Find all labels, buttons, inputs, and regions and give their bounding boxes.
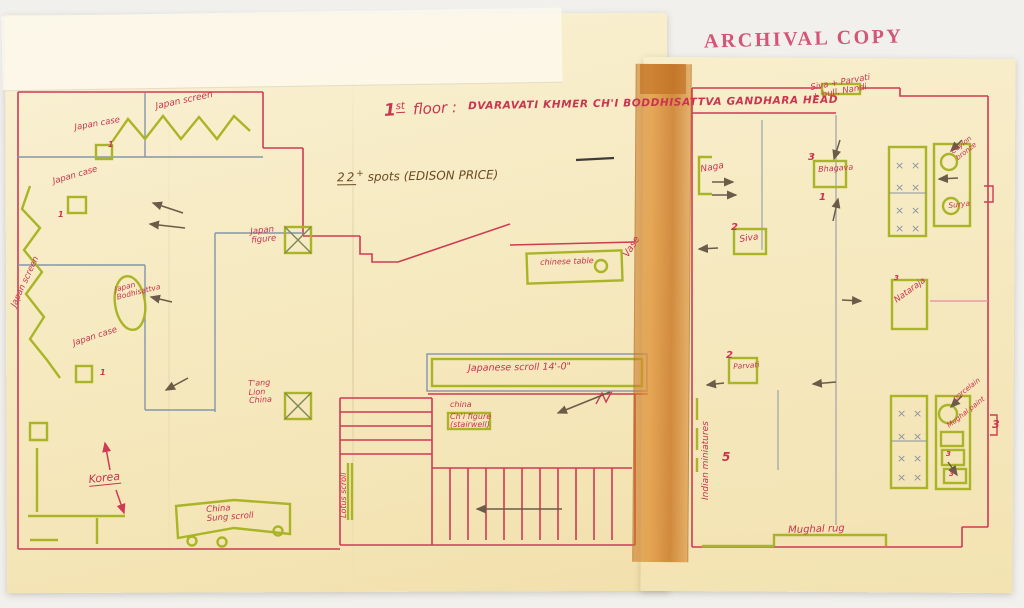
label-indian-miniatures: Indian miniatures [702,421,712,500]
svg-text:×: × [913,471,922,484]
spot-plus: + [356,169,364,179]
svg-text:×: × [895,204,904,217]
tape-strip-top [640,64,686,94]
red-ink-walls-right [692,88,997,547]
japan-screen-top-zigzag [112,116,250,142]
svg-text:×: × [913,452,922,465]
label-lotus-scroll: Lotus scroll [340,473,349,518]
svg-text:×: × [911,181,920,194]
svg-text:×: × [897,407,906,420]
qty-japan-case-2: 1 [58,210,64,219]
room-count: 5 [722,450,730,464]
boxed-count: 3 [992,418,1000,431]
qty-siva: 2 [731,222,738,233]
pencil-interior-walls [18,93,836,525]
artwork-item: DVARAVATI [468,99,539,112]
svg-text:×: × [911,222,920,235]
spot-text: spots (EDISON PRICE) [364,168,499,184]
floor-ordinal: st [395,100,405,112]
artwork-item: CH'I BODDHISATTVA [593,96,723,110]
qty-nataraja: 3 [894,274,899,282]
green-cases-right [697,84,970,546]
svg-text:×: × [895,222,904,235]
label-sung-scroll: China Sung scroll [206,503,254,525]
japan-case-2-box [68,197,86,213]
qty-japan-case-3: 1 [100,368,106,377]
svg-text:×: × [913,407,922,420]
svg-text:×: × [897,452,906,465]
pencil-arrows [150,140,962,509]
scanned-floor-plan-document: ×× ×× ×× ×× ×× ×× ×× ×× ARC [0,0,1024,608]
label-chi-figure: china Ch'i figure (stairwell) [450,401,491,430]
qty-bhagava: 3 [808,152,815,163]
artwork-item: KHMER [543,98,589,111]
label-tang-lion: T'ang Lion China [248,379,272,406]
case-qty-b: 3 [949,470,954,478]
svg-text:×: × [911,204,920,217]
label-japan-figure: Japan figure [250,225,277,246]
qty-japan-case-1: 1 [108,140,114,149]
svg-text:×: × [895,181,904,194]
label-japanese-scroll: Japanese scroll 14'-0" [468,362,571,374]
floor-title: 1stfloor : [384,97,458,121]
mughal-rug-outline [702,535,886,546]
case-x-marks: ×× ×× ×× ×× ×× ×× ×× ×× [895,159,922,484]
tape-strip [632,64,691,562]
svg-text:×: × [911,159,920,172]
case-qty-a: 3 [946,450,951,458]
japan-case-3-box [76,366,92,382]
floor-number: 1 [384,100,397,121]
note-bhagava: 1 [819,192,826,203]
svg-text:×: × [895,159,904,172]
label-chinese-table: chinese table [540,257,594,267]
label-mughal-rug: Mughal rug [788,524,845,537]
qty-parvati: 2 [726,350,733,361]
svg-text:×: × [897,471,906,484]
floor-word: floor : [413,98,458,118]
lighting-note: 22+ spots (EDISON PRICE) [337,167,499,185]
title-underline [576,158,614,160]
spot-count: 22 [337,170,357,185]
